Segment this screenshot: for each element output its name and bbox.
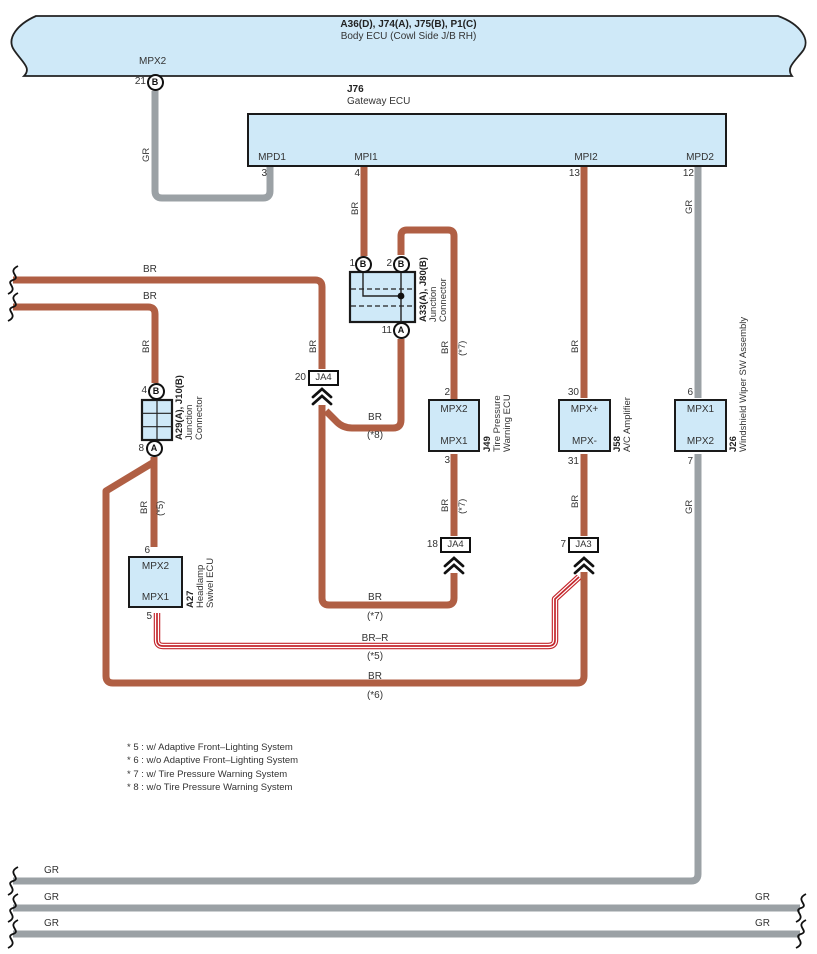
banner-component-name: Body ECU (Cowl Side J/B RH) bbox=[40, 31, 777, 43]
j26-name1: Windshield Wiper SW Assembly bbox=[739, 317, 749, 452]
pin-circle-b21: B bbox=[147, 74, 164, 91]
j58-name1: A/C Amplifier bbox=[623, 397, 633, 452]
j58-rotated-label: J58 A/C Amplifier bbox=[613, 397, 633, 452]
wire-label-gr: GR bbox=[142, 148, 152, 162]
j26-top-terminal: MPX1 bbox=[687, 404, 714, 415]
wire-label-gr: GR bbox=[44, 918, 59, 929]
wire-br-torn1-to-ja4-20 bbox=[13, 280, 322, 369]
a27-top-pin-num: 6 bbox=[128, 545, 150, 556]
a33-junction-dot bbox=[398, 293, 405, 300]
gateway-id: J76 bbox=[347, 84, 364, 95]
a27-name2: Swivel ECU bbox=[206, 558, 216, 608]
wire-label-gr: GR bbox=[44, 865, 59, 876]
top-pin-signal: MPX2 bbox=[139, 56, 166, 67]
wire-label-brr: BR–R bbox=[350, 633, 400, 644]
j58-ecu-box: MPX+ MPX- bbox=[558, 399, 611, 452]
gateway-pin-num-13: 13 bbox=[558, 168, 580, 179]
banner: A36(D), J74(A), J75(B), P1(C) Body ECU (… bbox=[40, 19, 777, 43]
wire-label-br: BR bbox=[309, 340, 319, 353]
j58-bottom-pin-num: 31 bbox=[557, 456, 579, 467]
note-ref7: * 7 : w/ Tire Pressure Warning System bbox=[127, 769, 287, 780]
note-ref8: * 8 : w/o Tire Pressure Warning System bbox=[127, 782, 292, 793]
pin-circle-a29-8a: A bbox=[146, 440, 163, 457]
j26-bottom-terminal: MPX2 bbox=[687, 436, 714, 447]
a33-junction-graphic bbox=[350, 272, 415, 322]
j49-bottom-pin-num: 3 bbox=[428, 455, 450, 466]
wire-label-ref5: (*5) bbox=[156, 501, 166, 516]
a33-box bbox=[350, 272, 415, 322]
a33-pin11-num: 11 bbox=[370, 325, 392, 336]
wire-label-br: BR bbox=[143, 291, 157, 302]
wire-label-ref7: (*7) bbox=[458, 341, 468, 356]
wire-label-br: BR bbox=[571, 495, 581, 508]
gateway-ecu-box: MPD1 MPI1 MPI2 MPD2 bbox=[247, 113, 727, 167]
banner-connector-ids: A36(D), J74(A), J75(B), P1(C) bbox=[40, 19, 777, 31]
j58-top-terminal: MPX+ bbox=[571, 404, 599, 415]
pin-circle-a33-1b: B bbox=[355, 256, 372, 273]
ja3-7-num: 7 bbox=[544, 539, 566, 550]
wire-label-gr: GR bbox=[685, 500, 695, 514]
wire-label-br: BR bbox=[140, 501, 150, 514]
note-ref6: * 6 : w/o Adaptive Front–Lighting System bbox=[127, 755, 298, 766]
chevron-icon-ja3-7 bbox=[575, 558, 593, 573]
a27-bottom-terminal: MPX1 bbox=[142, 592, 169, 603]
a33-pin2-num: 2 bbox=[370, 258, 392, 269]
note-ref5: * 5 : w/ Adaptive Front–Lighting System bbox=[127, 742, 293, 753]
ja4-20-connector: JA4 bbox=[308, 370, 339, 386]
a33-rotated-label: A33(A), J80(B) Junction Connector bbox=[419, 257, 449, 322]
a27-ecu-box: MPX2 MPX1 bbox=[128, 556, 183, 608]
ja4-18-connector: JA4 bbox=[440, 537, 471, 553]
wire-label-ref6: (*6) bbox=[355, 690, 395, 701]
j49-top-pin-num: 2 bbox=[428, 387, 450, 398]
a33-pin1-num: 1 bbox=[333, 258, 355, 269]
wiring-diagram: A36(D), J74(A), J75(B), P1(C) Body ECU (… bbox=[0, 0, 817, 954]
a27-top-terminal: MPX2 bbox=[142, 561, 169, 572]
ja4-20-num: 20 bbox=[284, 372, 306, 383]
gateway-pin-num-12: 12 bbox=[672, 168, 694, 179]
a29-junction-graphic bbox=[142, 400, 172, 440]
wire-label-br: BR bbox=[441, 499, 451, 512]
top-pin-number: 21 bbox=[124, 76, 146, 87]
wire-label-br: BR bbox=[441, 341, 451, 354]
wire-label-gr: GR bbox=[685, 200, 695, 214]
wire-label-ref8: (*8) bbox=[355, 430, 395, 441]
j49-rotated-label: J49 Tire Pressure Warning ECU bbox=[483, 394, 513, 452]
wire-label-gr: GR bbox=[44, 892, 59, 903]
gateway-pin-mpd2: MPD2 bbox=[686, 152, 714, 163]
j49-bottom-terminal: MPX1 bbox=[440, 436, 467, 447]
gateway-pin-mpd1: MPD1 bbox=[258, 152, 286, 163]
j26-ecu-box: MPX1 MPX2 bbox=[674, 399, 727, 452]
wire-label-br: BR bbox=[143, 264, 157, 275]
wire-label-gr: GR bbox=[755, 918, 770, 929]
wire-label-br: BR bbox=[355, 671, 395, 682]
wire-label-br: BR bbox=[571, 340, 581, 353]
j26-top-pin-num: 6 bbox=[671, 387, 693, 398]
ja4-18-num: 18 bbox=[416, 539, 438, 550]
ja3-7-connector: JA3 bbox=[568, 537, 599, 553]
j49-top-terminal: MPX2 bbox=[440, 404, 467, 415]
gateway-pin-num-4: 4 bbox=[338, 168, 360, 179]
wire-br-torn2-to-a29 bbox=[13, 307, 155, 383]
wire-label-br: BR bbox=[355, 412, 395, 423]
j26-rotated-label: J26 Windshield Wiper SW Assembly bbox=[729, 317, 749, 452]
wire-label-br: BR bbox=[355, 592, 395, 603]
gateway-pin-num-3: 3 bbox=[245, 168, 267, 179]
gateway-pin-mpi2: MPI2 bbox=[574, 152, 597, 163]
pin-circle-a29-4b: B bbox=[148, 383, 165, 400]
chevron-icon-ja4-18 bbox=[445, 558, 463, 573]
j58-bottom-terminal: MPX- bbox=[572, 436, 597, 447]
gray-wires bbox=[13, 91, 800, 934]
a27-rotated-label: A27 Headlamp Swivel ECU bbox=[186, 558, 216, 608]
chevron-icon-ja4-20 bbox=[313, 389, 331, 404]
a29-name2: Connector bbox=[195, 375, 205, 440]
pin-circle-a33-2b: B bbox=[393, 256, 410, 273]
wire-gr-j26-to-bus bbox=[13, 454, 698, 881]
gateway-pin-mpi1: MPI1 bbox=[354, 152, 377, 163]
a29-pin8-num: 8 bbox=[122, 443, 144, 454]
wire-label-gr: GR bbox=[755, 892, 770, 903]
gateway-name: Gateway ECU bbox=[347, 96, 410, 107]
a27-bottom-pin-num: 5 bbox=[130, 611, 152, 622]
wire-label-ref5: (*5) bbox=[355, 651, 395, 662]
pin-circle-a33-11a: A bbox=[393, 322, 410, 339]
wire-label-ref7: (*7) bbox=[355, 611, 395, 622]
a33-name2: Connector bbox=[439, 257, 449, 322]
a29-pin4-num: 4 bbox=[125, 385, 147, 396]
wire-label-br: BR bbox=[142, 340, 152, 353]
a29-rotated-label: A29(A), J10(B) Junction Connector bbox=[175, 375, 205, 440]
j58-top-pin-num: 30 bbox=[557, 387, 579, 398]
wire-label-br: BR bbox=[351, 202, 361, 215]
wire-label-ref7: (*7) bbox=[458, 499, 468, 514]
j49-name2: Warning ECU bbox=[503, 394, 513, 452]
j26-bottom-pin-num: 7 bbox=[671, 456, 693, 467]
j49-ecu-box: MPX2 MPX1 bbox=[428, 399, 480, 452]
